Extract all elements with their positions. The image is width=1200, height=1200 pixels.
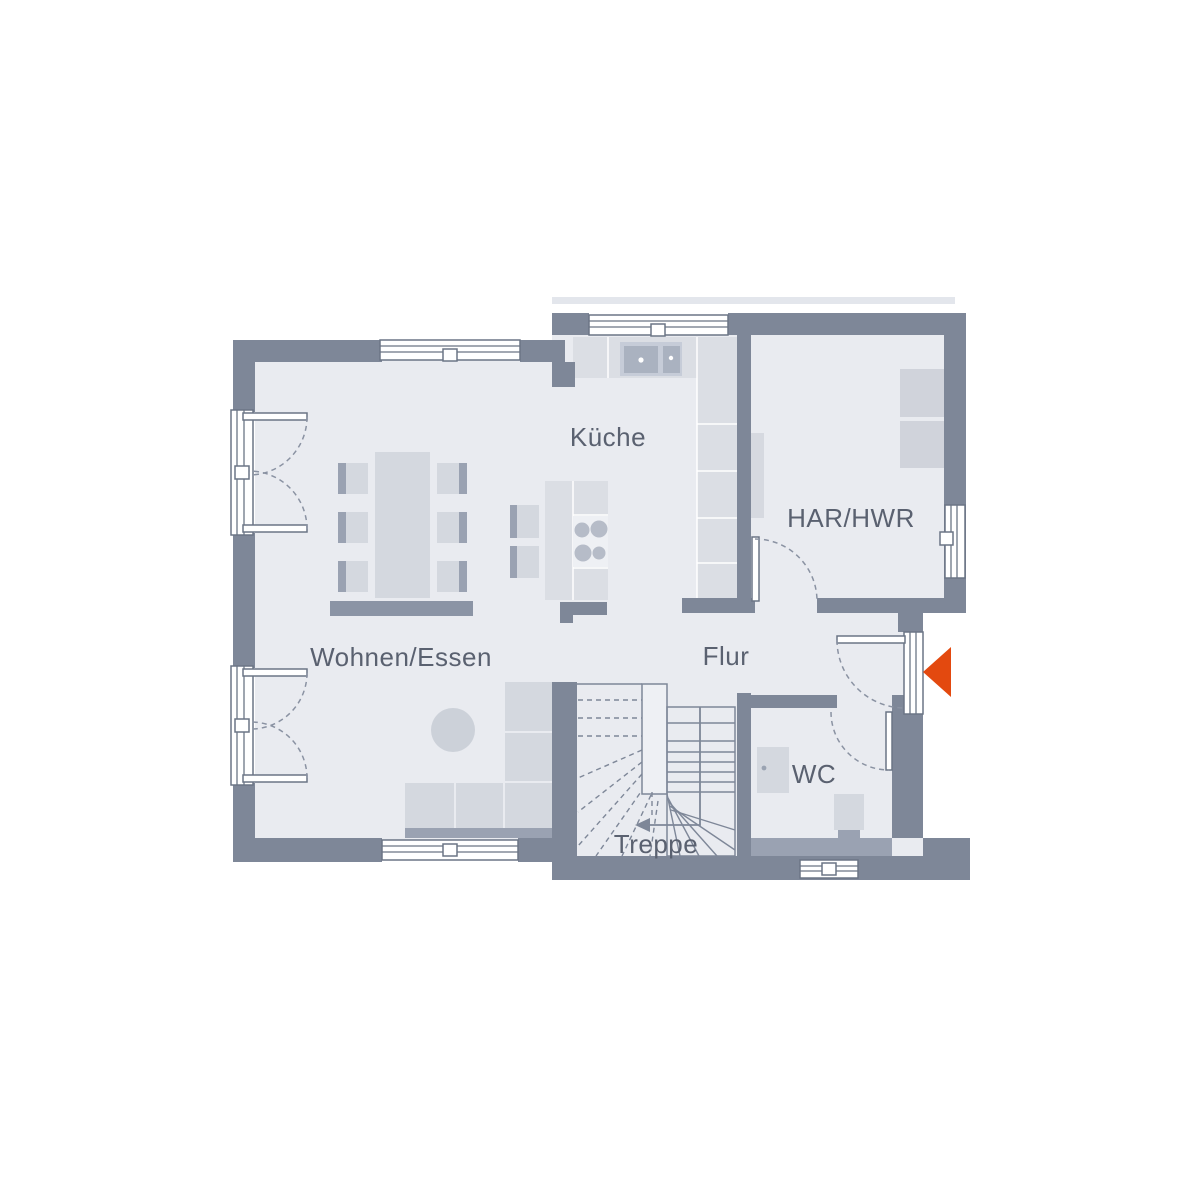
door-leaf [886, 712, 892, 770]
wall [233, 533, 255, 668]
wall [892, 714, 923, 838]
wall [817, 598, 966, 613]
door-leaf [243, 413, 307, 420]
cooktop-burner [575, 523, 590, 538]
dining-chair [346, 561, 368, 592]
wall [737, 693, 751, 856]
sofa-base [405, 828, 552, 838]
chair-accent [338, 463, 346, 494]
counter-side-run [697, 378, 737, 600]
floor-plan: Wohnen/Essen Küche Flur HAR/HWR WC Trepp… [0, 0, 1200, 1200]
roof-eaves-line [552, 297, 955, 304]
wall [520, 340, 565, 362]
wall [737, 335, 751, 598]
window-handle [822, 863, 836, 875]
wall [682, 598, 755, 613]
room-label-har-hwr: HAR/HWR [787, 503, 915, 533]
toilet-bowl [838, 830, 860, 842]
chair-accent [338, 512, 346, 543]
door-leaf [837, 636, 905, 643]
room-label-kueche: Küche [570, 422, 646, 452]
wall [233, 838, 382, 862]
wall [552, 313, 589, 335]
sofa-cushion [505, 682, 552, 731]
room-label-wohnen-essen: Wohnen/Essen [310, 642, 492, 672]
window-handle [940, 532, 953, 545]
wall [233, 340, 255, 412]
door-leaf [243, 669, 307, 676]
bar-chair [517, 546, 539, 578]
door-leaf [243, 775, 307, 782]
door-leaf [243, 525, 307, 532]
sofa-cushion [405, 783, 454, 828]
window-handle [443, 844, 457, 856]
wall [233, 340, 382, 362]
wall [560, 602, 607, 615]
appliance-washer [900, 369, 944, 417]
sideboard [330, 601, 473, 616]
sofa-cushion [505, 783, 552, 828]
chair-accent [510, 546, 517, 578]
room-label-flur: Flur [703, 641, 750, 671]
appliance-dryer [900, 421, 944, 468]
cooktop-burner [575, 545, 592, 562]
room-label-wc: WC [792, 759, 836, 789]
dining-table [375, 452, 430, 598]
wc-sink [757, 747, 789, 793]
room-label-treppe: Treppe [614, 829, 698, 859]
radiator [751, 433, 764, 518]
dining-set [330, 452, 473, 616]
cooktop-burner [591, 521, 608, 538]
door-leaf [752, 537, 759, 601]
wall [552, 682, 577, 880]
door-handle [235, 719, 249, 732]
wall [898, 613, 923, 632]
dining-chair [437, 512, 459, 543]
door-handle [235, 466, 249, 479]
window-living-top [380, 340, 520, 361]
cooktop-burner [593, 547, 606, 560]
window-handle [651, 324, 665, 336]
wall [560, 615, 573, 623]
floor-plan-page: Wohnen/Essen Küche Flur HAR/HWR WC Trepp… [0, 0, 1200, 1200]
dining-chair [346, 512, 368, 543]
wall [728, 313, 966, 335]
window-handle [443, 349, 457, 361]
chair-accent [338, 561, 346, 592]
dining-chair [346, 463, 368, 494]
wall [892, 695, 904, 714]
dining-chair [437, 561, 459, 592]
stair-void [642, 684, 667, 794]
chair-accent [459, 561, 467, 592]
sofa-cushion [456, 783, 503, 828]
window-living-bottom [382, 840, 518, 860]
window-wc [800, 860, 858, 878]
chair-accent [510, 505, 517, 538]
window-kitchen [589, 315, 728, 336]
dining-chair [437, 463, 459, 494]
bar-chair [517, 505, 539, 538]
wall [737, 695, 837, 708]
sofa-cushion [505, 733, 552, 781]
chair-accent [459, 463, 467, 494]
kitchen-island [545, 481, 608, 600]
wall [552, 362, 575, 387]
wc-bottom-band [751, 838, 892, 856]
toilet-tank [834, 794, 864, 830]
coffee-table [431, 708, 475, 752]
wall [552, 856, 970, 880]
chair-accent [459, 512, 467, 543]
